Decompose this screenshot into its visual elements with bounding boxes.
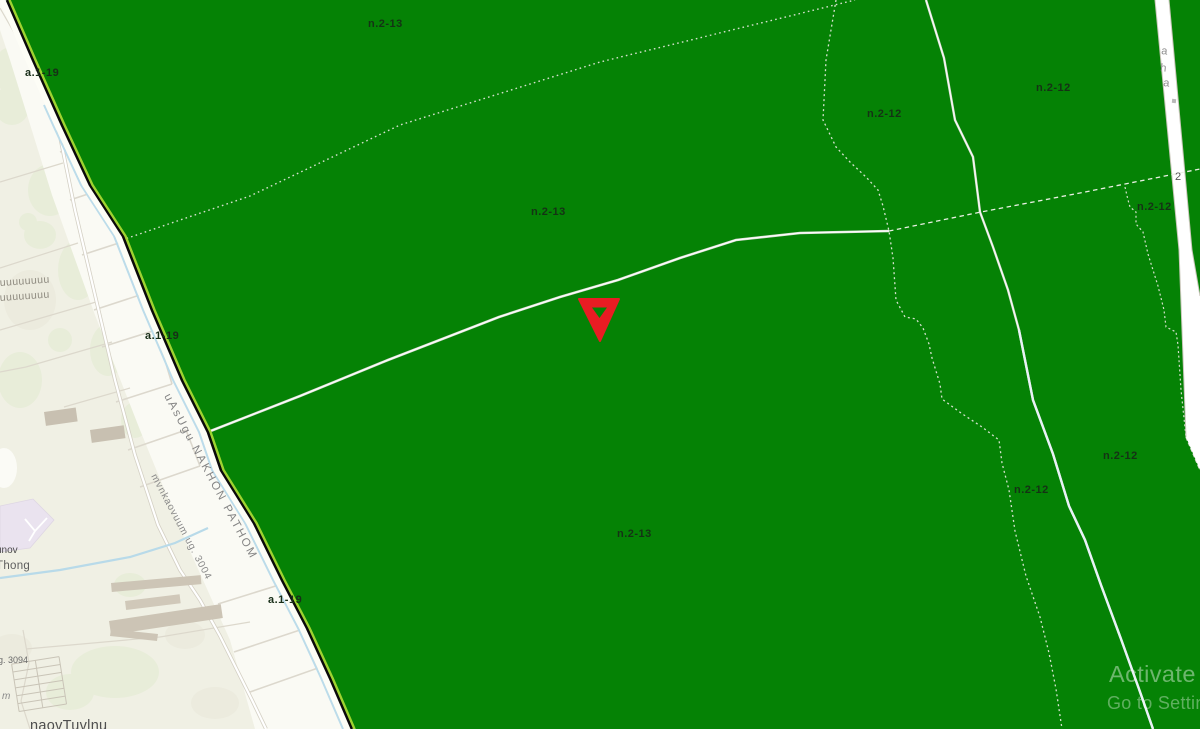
- svg-text:g. 3094: g. 3094: [0, 655, 28, 665]
- svg-text:a.1-19: a.1-19: [25, 67, 59, 79]
- svg-text:a.1-19: a.1-19: [268, 594, 302, 606]
- svg-text:h: h: [1160, 62, 1167, 75]
- svg-text:n.2-13: n.2-13: [531, 206, 566, 218]
- svg-text:n.2-13: n.2-13: [617, 528, 652, 540]
- svg-text:unov: unov: [0, 545, 18, 556]
- svg-text:n.2-13: n.2-13: [368, 18, 403, 30]
- svg-text:2: 2: [1175, 171, 1181, 183]
- svg-text:a.1-19: a.1-19: [145, 330, 179, 342]
- svg-text:n.2-12: n.2-12: [1137, 201, 1172, 213]
- svg-text:m: m: [2, 691, 10, 702]
- svg-text:n.2-12: n.2-12: [867, 108, 902, 120]
- svg-text:Activate: Activate: [1109, 661, 1196, 687]
- svg-text:n.2-12: n.2-12: [1103, 450, 1138, 462]
- svg-text:n.2-12: n.2-12: [1036, 82, 1071, 94]
- svg-text:Thong: Thong: [0, 560, 30, 572]
- svg-text:naovTuvlnu: naovTuvlnu: [30, 718, 107, 729]
- svg-text:n.2-12: n.2-12: [1014, 484, 1049, 496]
- svg-text:Go to Settin: Go to Settin: [1107, 693, 1200, 713]
